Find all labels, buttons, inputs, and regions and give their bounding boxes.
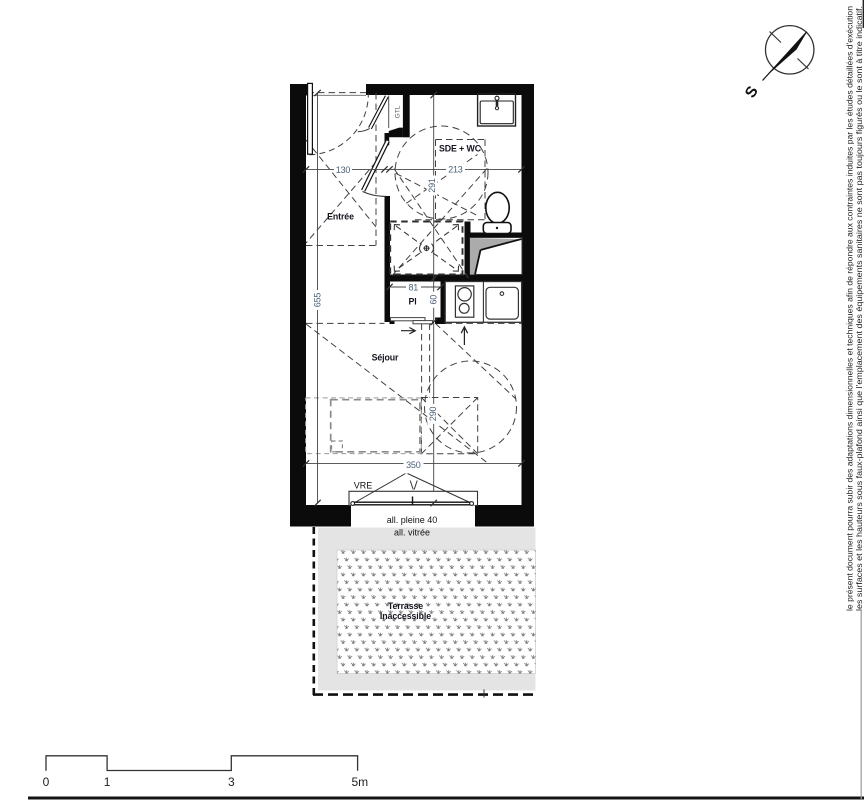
svg-text:VRE: VRE xyxy=(354,481,373,491)
svg-text:all. pleine 40: all. pleine 40 xyxy=(387,515,438,525)
svg-text:Inaccessible: Inaccessible xyxy=(380,611,431,621)
svg-text:655: 655 xyxy=(312,293,322,308)
svg-text:81: 81 xyxy=(408,282,418,292)
svg-text:291: 291 xyxy=(427,178,437,193)
svg-text:les surfaces et les hauteurs s: les surfaces et les hauteurs sous faux-p… xyxy=(854,6,864,611)
svg-text:130: 130 xyxy=(336,165,351,175)
svg-text:60: 60 xyxy=(429,295,439,305)
svg-text:Pl: Pl xyxy=(408,297,416,307)
svg-text:Terrasse: Terrasse xyxy=(388,601,423,611)
svg-text:GTL: GTL xyxy=(394,105,401,118)
svg-text:1: 1 xyxy=(104,775,111,789)
svg-text:0: 0 xyxy=(43,775,50,789)
svg-text:Séjour: Séjour xyxy=(372,353,399,363)
svg-text:3: 3 xyxy=(228,775,235,789)
svg-text:all. vitrée: all. vitrée xyxy=(394,527,430,537)
svg-text:290: 290 xyxy=(428,407,438,422)
svg-text:350: 350 xyxy=(406,460,421,470)
svg-text:SDE + WC: SDE + WC xyxy=(439,144,482,154)
svg-text:Entrée: Entrée xyxy=(327,212,354,222)
svg-text:213: 213 xyxy=(448,165,463,175)
svg-text:5m: 5m xyxy=(351,775,368,789)
